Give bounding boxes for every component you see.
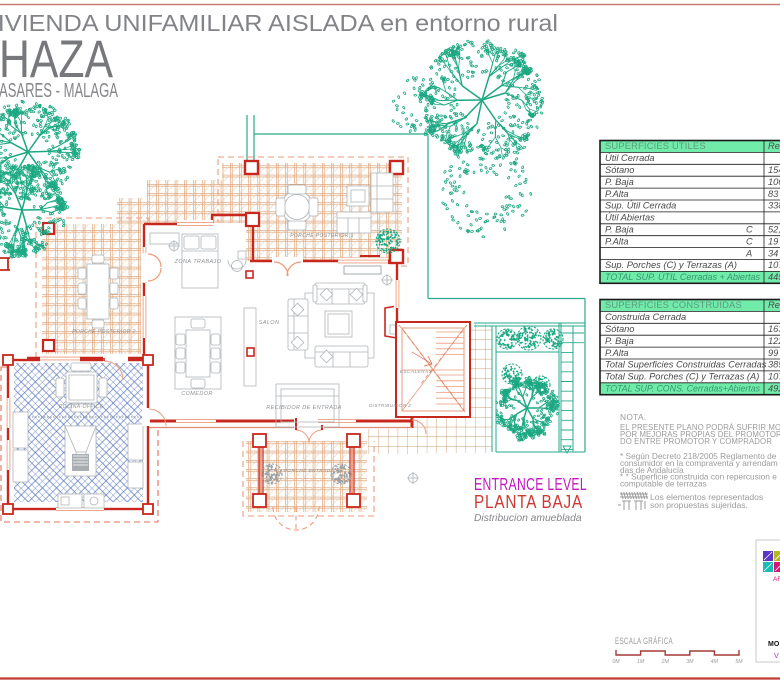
svg-text:Re: Re: [768, 141, 780, 151]
svg-text:19: 19: [768, 236, 778, 246]
svg-text:PORCHE ENTRADA: PORCHE ENTRADA: [284, 468, 334, 474]
svg-text:154,: 154,: [768, 165, 780, 175]
svg-text:PORCHE POSTERIOR 1: PORCHE POSTERIOR 1: [290, 233, 354, 239]
svg-text:SUPERFICIES ÚTILES: SUPERFICIES ÚTILES: [605, 141, 706, 151]
svg-text:AR: AR: [773, 576, 780, 583]
svg-text:Re: Re: [768, 300, 780, 310]
svg-text:107: 107: [768, 260, 780, 270]
svg-text:338: 338: [768, 201, 780, 211]
svg-text:ESCALERAS: ESCALERAS: [400, 369, 433, 375]
svg-text:COMEDOR: COMEDOR: [181, 391, 213, 397]
svg-text:52,: 52,: [768, 225, 780, 235]
svg-text:1M: 1M: [637, 659, 645, 665]
svg-text:ZONA TRABAJO: ZONA TRABAJO: [174, 259, 222, 265]
svg-text:DISTRIBUIDOR 2: DISTRIBUIDOR 2: [369, 403, 411, 408]
svg-text:492: 492: [768, 384, 780, 394]
svg-text:Total Sup. Porches (C) y Terra: Total Sup. Porches (C) y Terrazas (A): [605, 372, 759, 382]
svg-text:NOTA.: NOTA.: [620, 412, 646, 422]
svg-text:SALON: SALON: [259, 320, 280, 326]
svg-text:P.Alta: P.Alta: [605, 348, 629, 358]
svg-text:computable de terrazas: computable de terrazas: [620, 479, 707, 489]
svg-text:DO ENTRE PROMOTOR Y COMPRADOR: DO ENTRE PROMOTOR Y COMPRADOR: [620, 437, 772, 446]
svg-text:100,: 100,: [768, 177, 780, 187]
svg-text:P. Baja: P. Baja: [605, 336, 634, 346]
svg-text:5M: 5M: [735, 659, 743, 665]
svg-text:122,: 122,: [768, 336, 780, 346]
svg-text:PORCHE POSTERIOR 2: PORCHE POSTERIOR 2: [72, 329, 136, 335]
svg-text:445: 445: [768, 272, 780, 282]
svg-text:C: C: [746, 236, 753, 246]
svg-text:Sótano: Sótano: [605, 324, 634, 334]
svg-text:ASARES - MALAGA: ASARES - MALAGA: [0, 80, 118, 102]
svg-text:4M: 4M: [711, 659, 719, 665]
svg-text:RECIBIDOR DE ENTRADA: RECIBIDOR DE ENTRADA: [266, 405, 342, 411]
svg-text:83: 83: [768, 189, 779, 199]
svg-text:P. Baja: P. Baja: [605, 177, 634, 187]
svg-text:385: 385: [768, 360, 780, 370]
svg-text:2M: 2M: [661, 659, 670, 665]
svg-text:Total Superficies Construidas: Total Superficies Construidas Cerradas: [605, 360, 767, 370]
svg-text:P.Alta: P.Alta: [605, 236, 629, 246]
svg-text:V: V: [774, 653, 779, 660]
svg-text:TOTAL SUP. CONS. Cerradas+Abie: TOTAL SUP. CONS. Cerradas+Abiertas: [605, 384, 760, 394]
svg-text:Construida Cerrada: Construida Cerrada: [605, 312, 686, 322]
svg-text:SUPERFICIES CONSTRUIDAS: SUPERFICIES CONSTRUIDAS: [605, 300, 742, 310]
svg-text:A: A: [745, 248, 752, 258]
svg-text:0M: 0M: [612, 659, 620, 665]
svg-text:Distribucion amueblada: Distribucion amueblada: [474, 513, 582, 524]
svg-text:Sótano: Sótano: [605, 165, 634, 175]
svg-text:PLANTA BAJA: PLANTA BAJA: [474, 491, 583, 512]
svg-text:107: 107: [768, 372, 780, 382]
svg-text:son propuestas sujeridas.: son propuestas sujeridas.: [650, 500, 748, 510]
svg-text:3M: 3M: [686, 659, 694, 665]
svg-text:MO: MO: [768, 641, 780, 648]
svg-text:ESCALA GRÁFICA: ESCALA GRÁFICA: [615, 636, 673, 646]
svg-text:Sup. Útil Cerrada: Sup. Útil Cerrada: [605, 201, 676, 211]
svg-text:Sup. Porches (C) y Terrazas (A: Sup. Porches (C) y Terrazas (A): [605, 260, 737, 270]
svg-text:163,: 163,: [768, 324, 780, 334]
svg-text:Útil Abiertas: Útil Abiertas: [605, 213, 655, 223]
svg-text:COCINA-OFFICE: COCINA-OFFICE: [59, 404, 104, 410]
svg-text:C: C: [746, 225, 753, 235]
svg-text:P.Alta: P.Alta: [605, 189, 629, 199]
svg-text:99: 99: [768, 348, 778, 358]
svg-text:Útil Cerrada: Útil Cerrada: [605, 153, 655, 163]
svg-text:P. Baja: P. Baja: [605, 225, 634, 235]
svg-text:34: 34: [768, 248, 778, 258]
svg-text:TOTAL SUP. ÚTIL Cerradas + Abi: TOTAL SUP. ÚTIL Cerradas + Abiertas: [605, 272, 760, 282]
